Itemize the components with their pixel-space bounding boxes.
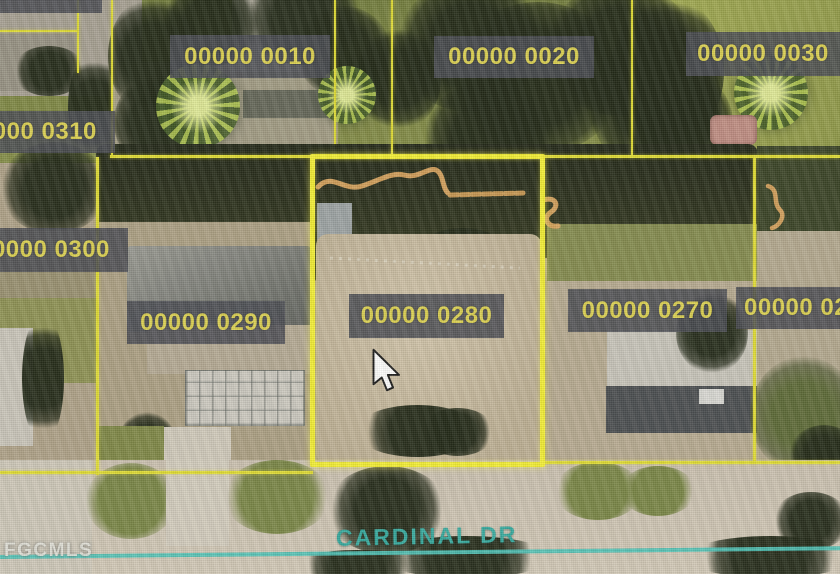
parcel-label-0030: 00000 0030 bbox=[686, 32, 840, 76]
parcel-boundary-line bbox=[631, 0, 633, 155]
parcel-label-clipped-top: 00000 0320 bbox=[0, 0, 102, 13]
parcel-label-0280: 00000 0280 bbox=[349, 294, 504, 338]
parcel-boundary-line bbox=[0, 30, 78, 32]
parcel-label-0270: 00000 0270 bbox=[568, 289, 727, 332]
parcel-boundary-line bbox=[0, 471, 313, 474]
parcel-label-0310: 00000 0310 bbox=[0, 111, 115, 153]
parcel-label-0290: 00000 0290 bbox=[127, 301, 285, 344]
street-name-label: CARDINAL DR bbox=[336, 521, 518, 552]
parcel-boundary-line bbox=[334, 0, 336, 144]
parcel-label-0010: 00000 0010 bbox=[170, 35, 330, 78]
parcel-boundary-line bbox=[96, 157, 99, 475]
mouse-cursor bbox=[372, 348, 402, 395]
parcel-label-0300: 00000 0300 bbox=[0, 228, 128, 272]
mls-watermark: FGCMLS bbox=[4, 540, 93, 562]
parcel-map[interactable]: 00000 0320 00000 0010 00000 0020 00000 0… bbox=[0, 0, 840, 574]
parcel-boundary-line bbox=[542, 461, 840, 464]
parcel-label-0020: 00000 0020 bbox=[434, 36, 594, 78]
parcel-label-clipped-right: 00000 02 bbox=[736, 287, 840, 329]
parcel-boundary-line bbox=[391, 0, 393, 158]
